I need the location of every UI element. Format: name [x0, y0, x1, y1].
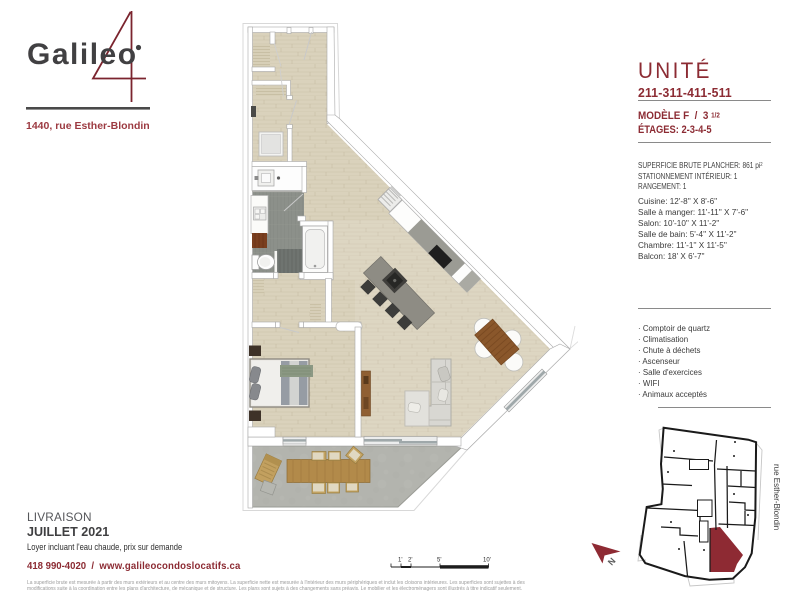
svg-text:1440, rue Esther-Blondin: 1440, rue Esther-Blondin [26, 120, 150, 132]
svg-text:10': 10' [483, 558, 491, 564]
svg-text:2': 2' [408, 558, 412, 564]
svg-text:rue Esther-Blondin: rue Esther-Blondin [772, 464, 781, 530]
svg-text:1': 1' [398, 558, 402, 564]
svg-text:Galileo: Galileo [27, 38, 138, 71]
svg-text:N: N [606, 556, 618, 568]
svg-text:5': 5' [437, 558, 441, 564]
